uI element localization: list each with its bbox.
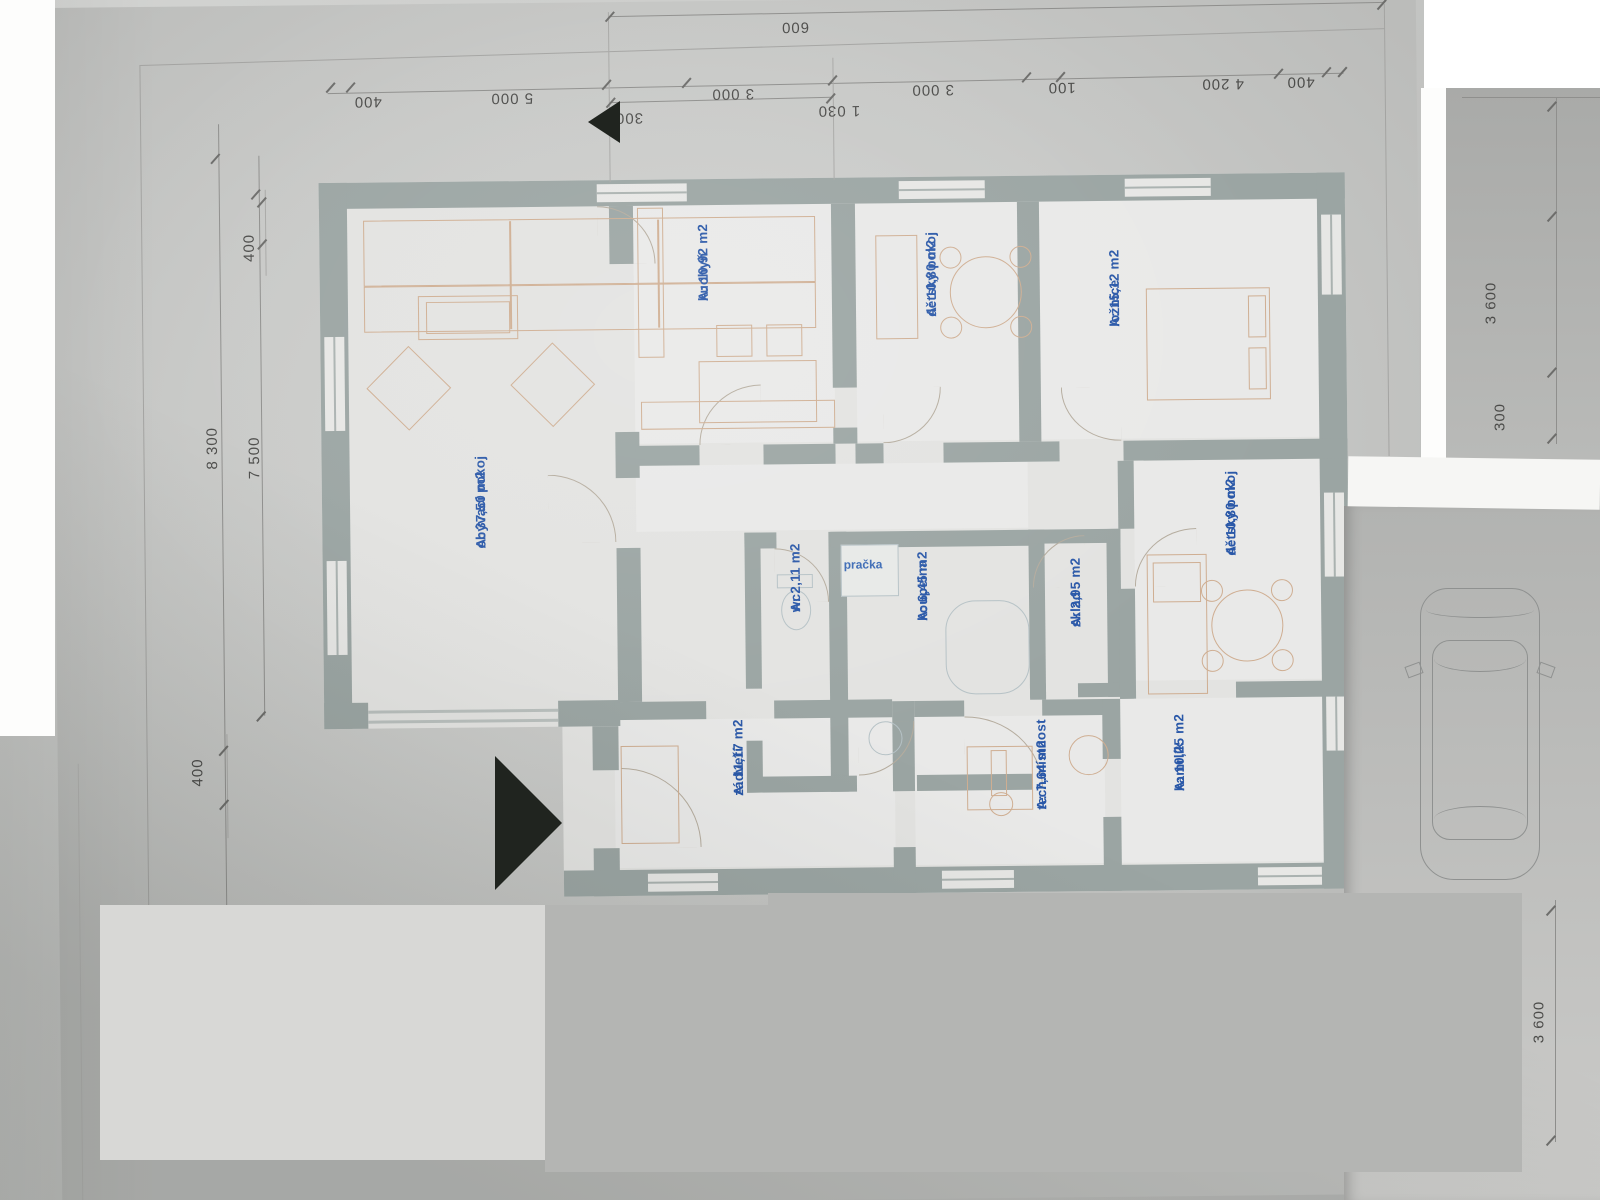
room-area: A: 15,12 m2 — [1105, 250, 1123, 327]
wall-under-bedrooms — [855, 443, 883, 463]
dimension-line-right-bottom — [1555, 900, 1556, 1142]
bed-pillow — [1153, 562, 1201, 603]
room-area: A: 6,45 m2 — [914, 551, 932, 621]
tech-drum — [1068, 735, 1108, 775]
window — [597, 183, 687, 202]
window — [324, 337, 345, 431]
wall-hall-living — [616, 548, 642, 702]
room-area: A: 2,95 m2 — [1067, 558, 1085, 628]
dim-tick — [256, 711, 266, 722]
wall-living-bottom — [558, 700, 620, 727]
wall-childroom2-bottom — [1236, 680, 1350, 697]
dim-label-4200: 4 200 — [1201, 75, 1244, 92]
wall-under-kitchen — [635, 445, 699, 466]
wall-kitchen-childroom — [831, 204, 857, 388]
play-table — [1211, 589, 1284, 662]
sheet-gap-sliver — [1421, 88, 1446, 460]
dim-label-600: 600 — [781, 19, 809, 36]
room-area: A: 2,11 m2 — [786, 543, 804, 612]
dimension-line-400-bottom — [226, 734, 228, 838]
window — [1321, 214, 1342, 294]
dim-label-8300: 8 300 — [204, 427, 221, 470]
wardrobe-outline — [621, 745, 680, 844]
dim-label-5000: 5 000 — [490, 89, 533, 106]
dimension-line-600 — [609, 2, 1385, 17]
wall-under-bedrooms — [943, 441, 1059, 462]
dim-tick — [326, 82, 336, 93]
dim-label-400-topleft: 400 — [241, 234, 258, 262]
wall-wc-left — [744, 533, 762, 689]
dim-label-3600-right: 3 600 — [1483, 282, 1500, 325]
chair — [1271, 579, 1293, 601]
kitchen-stool — [766, 324, 802, 356]
entrance-arrow-large — [495, 756, 562, 890]
pillow — [1248, 295, 1266, 337]
wall-kitchen-childroom — [833, 428, 857, 444]
window — [1125, 178, 1211, 197]
chair — [939, 246, 961, 268]
wall-childroom2-left — [1118, 461, 1135, 529]
dimension-line-right — [1556, 98, 1557, 444]
wall-corridor-stub — [774, 699, 892, 718]
dim-label-3000: 3 000 — [711, 85, 754, 102]
dimension-stub — [1462, 97, 1600, 98]
kitchen-stool — [716, 325, 752, 357]
room-area: A: 10,80 m2 — [1222, 478, 1240, 555]
dim-label-300-right: 300 — [1492, 403, 1509, 431]
window — [899, 180, 985, 199]
kitchen-table — [699, 360, 818, 423]
room-area: A: 10,92 m2 — [694, 224, 712, 301]
bathtub — [945, 600, 1030, 695]
wall-bath-bottom — [747, 776, 857, 793]
sink — [868, 721, 902, 755]
car-windshield — [1434, 646, 1526, 672]
boiler-gauge — [989, 792, 1013, 816]
car-hood-line — [1426, 602, 1534, 618]
window — [1324, 492, 1345, 576]
wall-storage-bottom — [1030, 684, 1046, 698]
side-sheet-top: 3 600 300 — [1446, 86, 1600, 460]
sheet-gap-band — [1348, 456, 1600, 510]
dim-label-3000b: 3 000 — [911, 81, 954, 98]
floorplan-photo: obývací pokoj A: 37,50 m2 kuchyň A: 10,9… — [0, 0, 1600, 1200]
dim-tick — [346, 82, 356, 93]
wall-vestibule-tech — [894, 847, 916, 893]
room-area: A: 10,25 m2 — [1170, 714, 1188, 791]
room-area: A: 37,50 m2 — [472, 471, 490, 548]
play-table — [949, 256, 1022, 329]
room-area: A: 10,80 m2 — [922, 239, 940, 316]
coffee-table-inner — [426, 301, 510, 334]
covered-area-step — [768, 893, 1522, 907]
wall-tech-top — [914, 700, 964, 717]
wall-childroom2-bottom — [1120, 683, 1134, 699]
dimension-line-400-top — [265, 190, 267, 276]
dim-label-400-bottomleft: 400 — [189, 758, 206, 786]
boiler-slot — [991, 750, 1007, 796]
dim-tick — [1021, 72, 1031, 83]
chair — [1009, 246, 1031, 268]
wall-bath-top — [744, 532, 776, 548]
room-floor-patch — [636, 462, 1029, 532]
room-area: A: 7,64 m2 — [1033, 740, 1051, 810]
window — [648, 873, 718, 892]
car-rear-window — [1434, 806, 1526, 832]
pillow — [1248, 347, 1266, 389]
sofa-outline — [363, 216, 816, 287]
window — [327, 561, 348, 655]
covered-area-left — [100, 905, 545, 1160]
dim-label-100: 100 — [1048, 79, 1076, 96]
room-floor-patch — [1120, 697, 1324, 863]
chair — [1272, 649, 1294, 671]
covered-area-main — [545, 905, 1522, 1172]
chair — [940, 316, 962, 338]
window — [942, 870, 1014, 889]
window — [1258, 867, 1322, 886]
kitchen-counter — [637, 208, 665, 358]
dim-label-7500: 7 500 — [246, 437, 263, 480]
washer-label: pračka — [844, 557, 883, 571]
dim-label-1030: 1 030 — [818, 102, 861, 119]
wall-vestibule-left — [592, 726, 618, 770]
chair — [1010, 316, 1032, 338]
wall-tech-top — [1042, 699, 1104, 716]
plot-boundary-top — [140, 28, 1384, 66]
bed-outline — [875, 235, 918, 339]
dim-label-400: 400 — [354, 93, 382, 110]
photo-white-edge-left — [0, 0, 55, 736]
wall-storage-bottom — [1078, 683, 1122, 697]
wall-tech-kamrlik — [1103, 817, 1122, 891]
room-area: A: 11,17 m2 — [729, 719, 747, 796]
wall-corridor-stub — [614, 701, 706, 720]
wall-under-kitchen — [763, 444, 835, 465]
plot-edge-faint — [78, 764, 84, 1200]
dim-label-3600-bottom: 3 600 — [1531, 1001, 1548, 1044]
photo-white-corner-topright — [1424, 0, 1600, 88]
plot-boundary-right — [1384, 4, 1390, 456]
extension-line — [608, 12, 611, 182]
wall-living-bottom — [324, 703, 368, 729]
dim-label-400b: 400 — [1287, 73, 1315, 90]
wall-under-bedrooms — [1123, 438, 1347, 460]
entrance-arrow-small — [588, 101, 620, 143]
